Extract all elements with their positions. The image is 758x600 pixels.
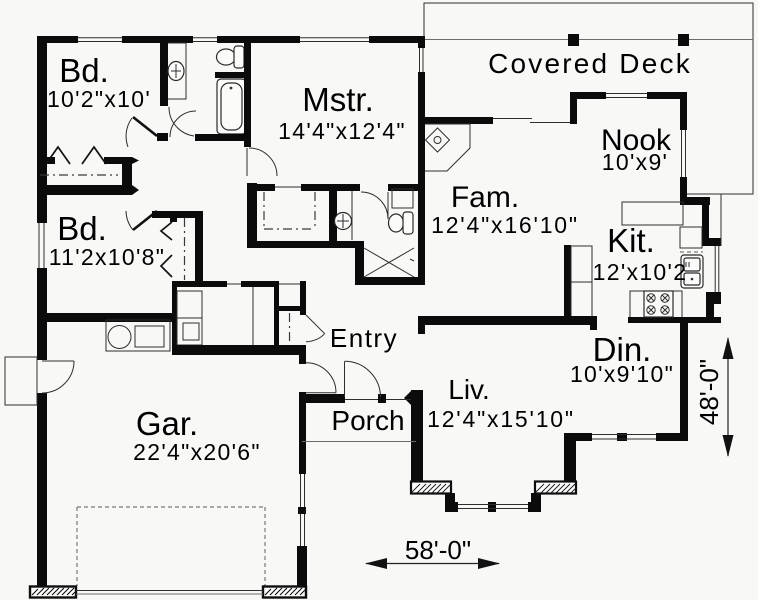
svg-text:Liv.: Liv. bbox=[448, 374, 490, 405]
svg-text:Fam.: Fam. bbox=[451, 181, 519, 214]
svg-text:58'-0": 58'-0" bbox=[405, 535, 471, 565]
svg-text:Bd.: Bd. bbox=[59, 52, 109, 89]
svg-text:Kit.: Kit. bbox=[607, 222, 655, 259]
svg-text:10'x9'10": 10'x9'10" bbox=[570, 361, 674, 387]
svg-text:12'4"x15'10": 12'4"x15'10" bbox=[427, 406, 575, 432]
svg-text:14'4"x12'4": 14'4"x12'4" bbox=[278, 118, 406, 144]
svg-text:22'4"x20'6": 22'4"x20'6" bbox=[133, 439, 261, 465]
svg-text:10'2"x10': 10'2"x10' bbox=[47, 86, 151, 112]
svg-text:Covered Deck: Covered Deck bbox=[488, 48, 692, 79]
svg-text:Gar.: Gar. bbox=[136, 405, 198, 442]
svg-text:Entry: Entry bbox=[330, 323, 398, 353]
svg-text:11'2x10'8": 11'2x10'8" bbox=[49, 244, 166, 270]
svg-text:48'-0": 48'-0" bbox=[694, 359, 724, 425]
svg-text:Bd.: Bd. bbox=[57, 210, 107, 247]
svg-text:Porch: Porch bbox=[331, 405, 404, 436]
svg-text:10'x9': 10'x9' bbox=[602, 149, 668, 175]
svg-text:12'4"x16'10": 12'4"x16'10" bbox=[431, 212, 579, 238]
svg-text:12'x10'2: 12'x10'2 bbox=[593, 259, 688, 285]
svg-text:Mstr.: Mstr. bbox=[302, 81, 374, 118]
